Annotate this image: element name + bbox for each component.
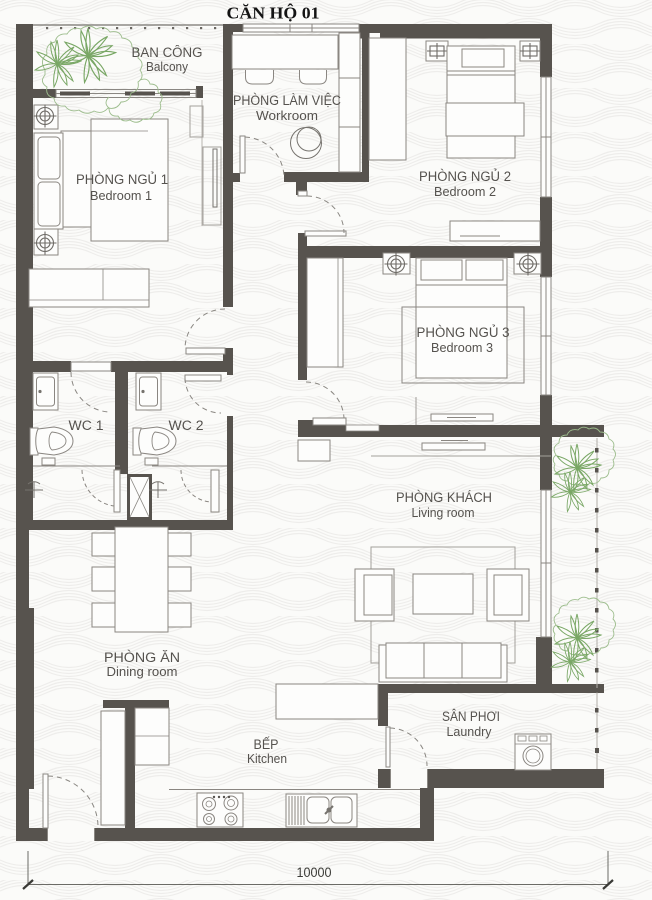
- svg-text:Dining room: Dining room: [107, 665, 178, 679]
- svg-text:CĂN HỘ 01: CĂN HỘ 01: [227, 4, 320, 23]
- svg-text:PHÒNG NGỦ 2: PHÒNG NGỦ 2: [419, 169, 511, 184]
- svg-text:Living room: Living room: [412, 506, 475, 520]
- svg-text:BAN CÔNG: BAN CÔNG: [132, 45, 203, 60]
- svg-text:PHÒNG LÀM VIỆC: PHÒNG LÀM VIỆC: [233, 93, 341, 108]
- svg-text:SÂN PHƠI: SÂN PHƠI: [442, 709, 500, 724]
- svg-text:Kitchen: Kitchen: [247, 752, 287, 766]
- svg-text:PHÒNG NGỦ 1: PHÒNG NGỦ 1: [76, 172, 168, 187]
- svg-text:BẾP: BẾP: [254, 737, 279, 752]
- svg-text:Balcony: Balcony: [146, 60, 189, 74]
- svg-text:WC 1: WC 1: [69, 418, 104, 433]
- svg-text:WC 2: WC 2: [169, 418, 204, 433]
- svg-text:Bedroom 3: Bedroom 3: [431, 341, 493, 355]
- svg-text:Laundry: Laundry: [447, 725, 493, 739]
- svg-text:Bedroom 2: Bedroom 2: [434, 185, 496, 199]
- svg-text:Workroom: Workroom: [256, 109, 318, 123]
- svg-text:Bedroom 1: Bedroom 1: [90, 189, 152, 203]
- svg-text:PHÒNG ĂN: PHÒNG ĂN: [104, 650, 180, 665]
- svg-text:10000: 10000: [297, 865, 332, 880]
- svg-text:PHÒNG NGỦ 3: PHÒNG NGỦ 3: [417, 325, 510, 340]
- svg-text:PHÒNG KHÁCH: PHÒNG KHÁCH: [396, 490, 492, 505]
